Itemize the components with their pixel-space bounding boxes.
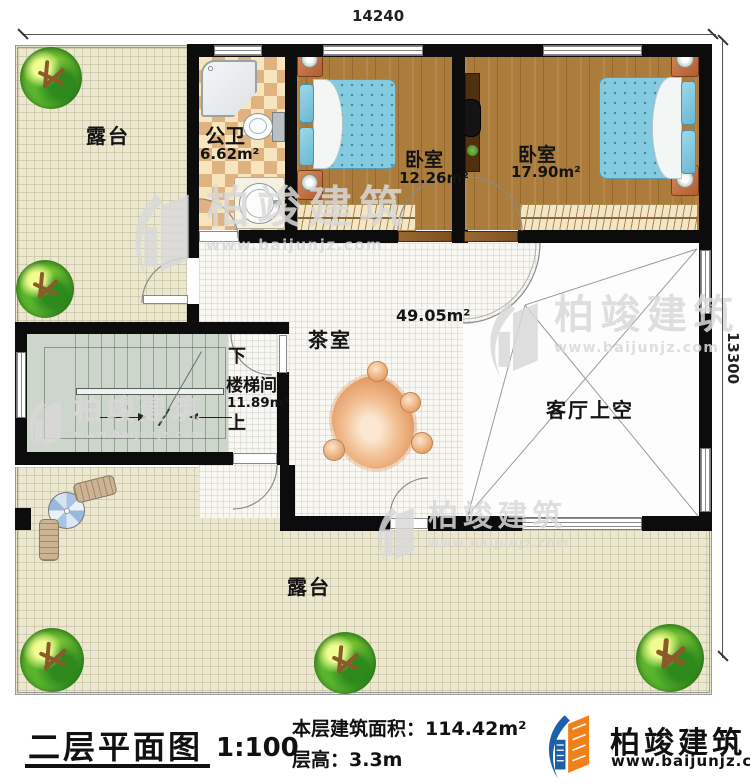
dimension-height: 13300: [724, 332, 742, 376]
room-label-bathroom: 公卫: [205, 126, 245, 146]
room-label-terrace-top: 露台: [86, 126, 130, 146]
room-label-stairwell: 楼梯间: [226, 378, 277, 395]
watermark: 柏竣建筑 www.baijunjz.com: [482, 295, 740, 381]
floorplan-canvas: 柏竣建筑 www.baijunjz.com 柏竣建筑 www.baijunjz.…: [0, 0, 750, 784]
watermark-url: www.baijunjz.com: [74, 428, 204, 441]
watermark-brand: 柏竣建筑: [206, 186, 410, 230]
watermark: 柏竣建筑 www.baijunjz.com: [372, 502, 570, 566]
room-label-tearoom: 茶室: [308, 330, 352, 350]
watermark-brand: 柏竣建筑: [554, 295, 740, 335]
floor-area-line: 本层建筑面积：114.42m²: [292, 714, 526, 741]
watermark-brand: 柏竣建筑: [428, 502, 570, 532]
room-label-living-void: 客厅上空: [546, 400, 634, 420]
dimension-line-right: [722, 40, 723, 658]
brand-logo-icon: [482, 295, 546, 381]
brand-logo-icon: [24, 396, 66, 452]
watermark: 柏竣建筑 www.baijunjz.com: [24, 396, 204, 452]
dimension-width: 14240: [352, 7, 404, 25]
plan-title-underline: [25, 764, 210, 768]
brand-logo-icon: [372, 502, 420, 566]
door-arcs-overlay: [0, 0, 750, 784]
watermark-url: www.baijunjz.com: [206, 236, 410, 254]
stairs-down-label: 下: [228, 348, 246, 366]
watermark: 柏竣建筑 www.baijunjz.com: [126, 186, 410, 282]
brand-logo-icon: [126, 186, 198, 282]
brand-logo-icon: [540, 710, 598, 780]
plan-scale: 1:100: [216, 733, 299, 763]
floor-height-line: 层高：3.3m: [292, 745, 402, 772]
plan-title: 二层平面图: [28, 722, 203, 768]
watermark-brand: 柏竣建筑: [74, 396, 204, 424]
stairs-up-label: 上: [228, 415, 246, 433]
watermark-url: www.baijunjz.com: [554, 340, 740, 356]
watermark-url: www.baijunjz.com: [428, 536, 570, 550]
room-area-stairwell: 11.89m²: [227, 397, 290, 411]
room-label-bedroom1: 卧室: [405, 151, 443, 170]
room-area-tearoom: 49.05m²: [396, 308, 470, 324]
brand-url: www.baijunjz.com: [611, 752, 750, 770]
dimension-line-top: [22, 34, 716, 35]
room-area-bedroom2: 17.90m²: [511, 165, 581, 180]
room-area-bedroom1: 12.26m²: [399, 171, 469, 186]
room-label-terrace-bottom: 露台: [287, 577, 331, 597]
room-area-bathroom: 6.62m²: [200, 147, 259, 162]
